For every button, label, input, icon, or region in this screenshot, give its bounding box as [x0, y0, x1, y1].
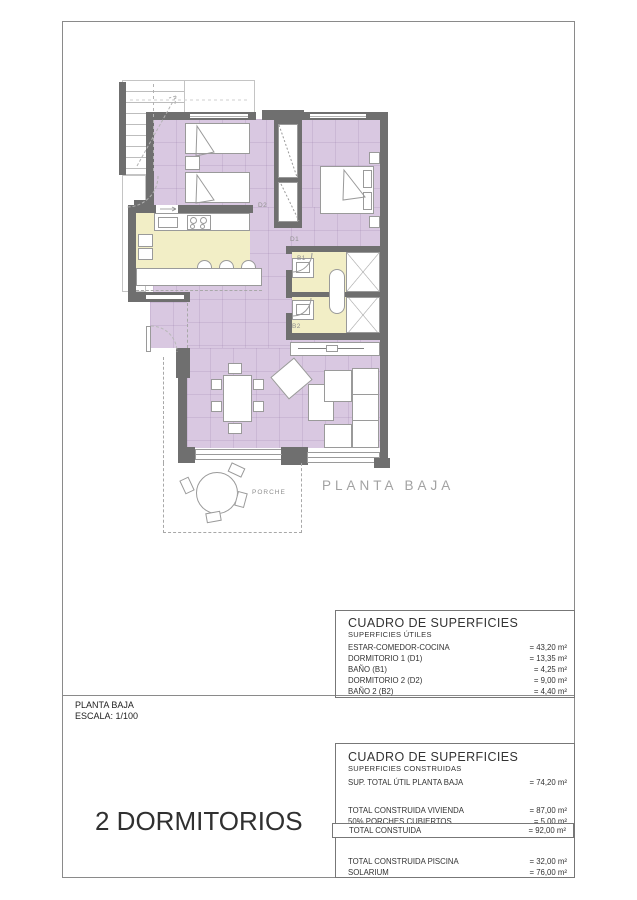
window-entry: [146, 295, 184, 299]
footer-plan-title: PLANTA BAJA: [75, 700, 134, 711]
headline-bedrooms: 2 DORMITORIOS: [95, 806, 290, 837]
area-value: = 92,00 m²: [529, 825, 567, 836]
stair-wall: [119, 82, 126, 175]
area-row: TOTAL CONSTRUIDA VIVIENDA = 87,00 m²: [348, 805, 567, 816]
area-row: SUP. TOTAL ÚTIL PLANTA BAJA = 74,20 m²: [348, 777, 567, 788]
sofa-main: [352, 368, 379, 448]
bar-stool-3: [241, 260, 256, 268]
basin-bathroom2: [296, 304, 310, 315]
kitchen-door-gap: [156, 205, 178, 213]
sofa-cushion-line-2: [353, 420, 378, 421]
label-bedroom1: D1: [290, 236, 299, 243]
area-value: = 43,20 m²: [530, 642, 568, 653]
area-row: TOTAL CONSTRUIDA PISCINA = 32,00 m²: [348, 856, 567, 867]
label-bathroom2: B2: [292, 323, 301, 330]
area-label: SOLARIUM: [348, 867, 389, 878]
single-bed-1: [185, 123, 250, 154]
area-label: DORMITORIO 2 (D2): [348, 675, 422, 686]
entry-door-leaf: [146, 326, 151, 352]
fridge: [138, 234, 153, 247]
kitchen-appliance: [138, 248, 153, 260]
wall-kitchen-left: [128, 205, 136, 292]
bar-stool-2: [219, 260, 234, 268]
breakfast-bar: [136, 268, 262, 286]
label-bedroom2: D2: [258, 202, 267, 209]
table-superficies-utiles: CUADRO DE SUPERFICIES SUPERFICIES ÚTILES…: [335, 610, 575, 698]
entry-dashed-line: [187, 303, 188, 348]
area-row: TOTAL CONSTUIDA = 92,00 m²: [349, 825, 566, 836]
single-bed-2: [185, 172, 250, 203]
area-row: DORMITORIO 2 (D2) = 9,00 m²: [348, 675, 567, 686]
bathtub: [329, 269, 345, 314]
overhang-dashed-line: [136, 290, 262, 291]
closet-upper: [278, 124, 298, 178]
dining-chair-2: [211, 401, 222, 412]
area-label: TOTAL CONSTRUIDA PISCINA: [348, 856, 459, 867]
pillow-2: [363, 192, 372, 210]
kitchen-sink: [158, 217, 178, 228]
window-bedroom2: [190, 114, 248, 118]
nightstand-bedroom2: [185, 156, 200, 170]
wall-kitchen-corner: [134, 200, 154, 213]
label-bathroom1: B1: [297, 255, 306, 262]
basin-bathroom1: [296, 262, 310, 273]
dining-chair-3: [253, 379, 264, 390]
window-bedroom1: [310, 114, 366, 118]
burner-3: [190, 224, 195, 229]
table-subtitle: SUPERFICIES ÚTILES: [348, 630, 432, 639]
pillow-1: [363, 170, 372, 188]
burner-1: [190, 217, 197, 224]
area-value: = 4,25 m²: [534, 664, 567, 675]
bar-stool-1: [197, 260, 212, 268]
wall-living-left: [178, 348, 187, 463]
burner-4: [200, 224, 205, 229]
plan-caption: PLANTA BAJA: [322, 478, 454, 493]
area-value: = 4,40 m²: [534, 686, 567, 697]
area-value: = 13,35 m²: [530, 653, 568, 664]
area-label: ESTAR-COMEDOR-COCINA: [348, 642, 450, 653]
area-value: = 32,00 m²: [530, 856, 568, 867]
table-title: CUADRO DE SUPERFICIES: [348, 750, 518, 764]
table-subtitle: SUPERFICIES CONSTRUIDAS: [348, 764, 462, 773]
wall-south-pier-right: [374, 458, 390, 468]
area-row: BAÑO (B1) = 4,25 m²: [348, 664, 567, 675]
area-row: ESTAR-COMEDOR-COCINA = 43,20 m²: [348, 642, 567, 653]
dining-chair-6: [228, 423, 242, 434]
porch-dashed-left: [163, 357, 164, 463]
wall-bath-bottom: [286, 333, 388, 340]
window-south-right: [307, 452, 380, 463]
footer-scale: ESCALA: 1/100: [75, 711, 138, 722]
total-boxed-row: TOTAL CONSTUIDA = 92,00 m²: [332, 823, 574, 838]
area-value: = 76,00 m²: [530, 867, 568, 878]
porch-table: [196, 472, 238, 514]
table-title: CUADRO DE SUPERFICIES: [348, 616, 518, 630]
area-value: = 74,20 m²: [530, 777, 568, 788]
plan-sheet: D2 D1 B1 B2 PORCHE PLANTA BAJA CUADRO DE…: [0, 0, 637, 900]
closet-lower: [278, 182, 298, 222]
sliding-door-leaf: [326, 345, 338, 352]
nightstand-bedroom1-bottom: [369, 216, 380, 228]
area-label: TOTAL CONSTUIDA: [349, 825, 421, 836]
area-row: SOLARIUM = 76,00 m²: [348, 867, 567, 878]
wall-south-pier-left: [178, 447, 195, 463]
entry-floor: [150, 302, 187, 348]
area-value: = 87,00 m²: [530, 805, 568, 816]
dining-table: [223, 375, 252, 422]
sofa-cushion-line-1: [353, 394, 378, 395]
window-south-left: [195, 449, 283, 460]
dining-chair-1: [211, 379, 222, 390]
area-label: TOTAL CONSTRUIDA VIVIENDA: [348, 805, 464, 816]
wall-right: [380, 112, 388, 468]
table-superficies-construidas: CUADRO DE SUPERFICIES SUPERFICIES CONSTR…: [335, 743, 575, 878]
sofa-chaise-top: [324, 370, 352, 402]
wall-left-bedroom2: [146, 112, 154, 213]
nightstand-bedroom1-top: [369, 152, 380, 164]
wall-bath-left-a: [286, 246, 292, 254]
area-row: BAÑO 2 (B2) = 4,40 m²: [348, 686, 567, 697]
area-row: DORMITORIO 1 (D1) = 13,35 m²: [348, 653, 567, 664]
label-porch: PORCHE: [252, 489, 286, 496]
dining-chair-4: [253, 401, 264, 412]
area-label: BAÑO 2 (B2): [348, 686, 394, 697]
burner-2: [200, 217, 207, 224]
area-label: SUP. TOTAL ÚTIL PLANTA BAJA: [348, 777, 463, 788]
area-value: = 9,00 m²: [534, 675, 567, 686]
dining-chair-5: [228, 363, 242, 374]
sofa-chaise-bottom: [324, 424, 352, 448]
shower-bathroom2: [346, 297, 380, 333]
area-label: BAÑO (B1): [348, 664, 387, 675]
shower-bathroom1: [346, 252, 380, 292]
area-label: DORMITORIO 1 (D1): [348, 653, 422, 664]
